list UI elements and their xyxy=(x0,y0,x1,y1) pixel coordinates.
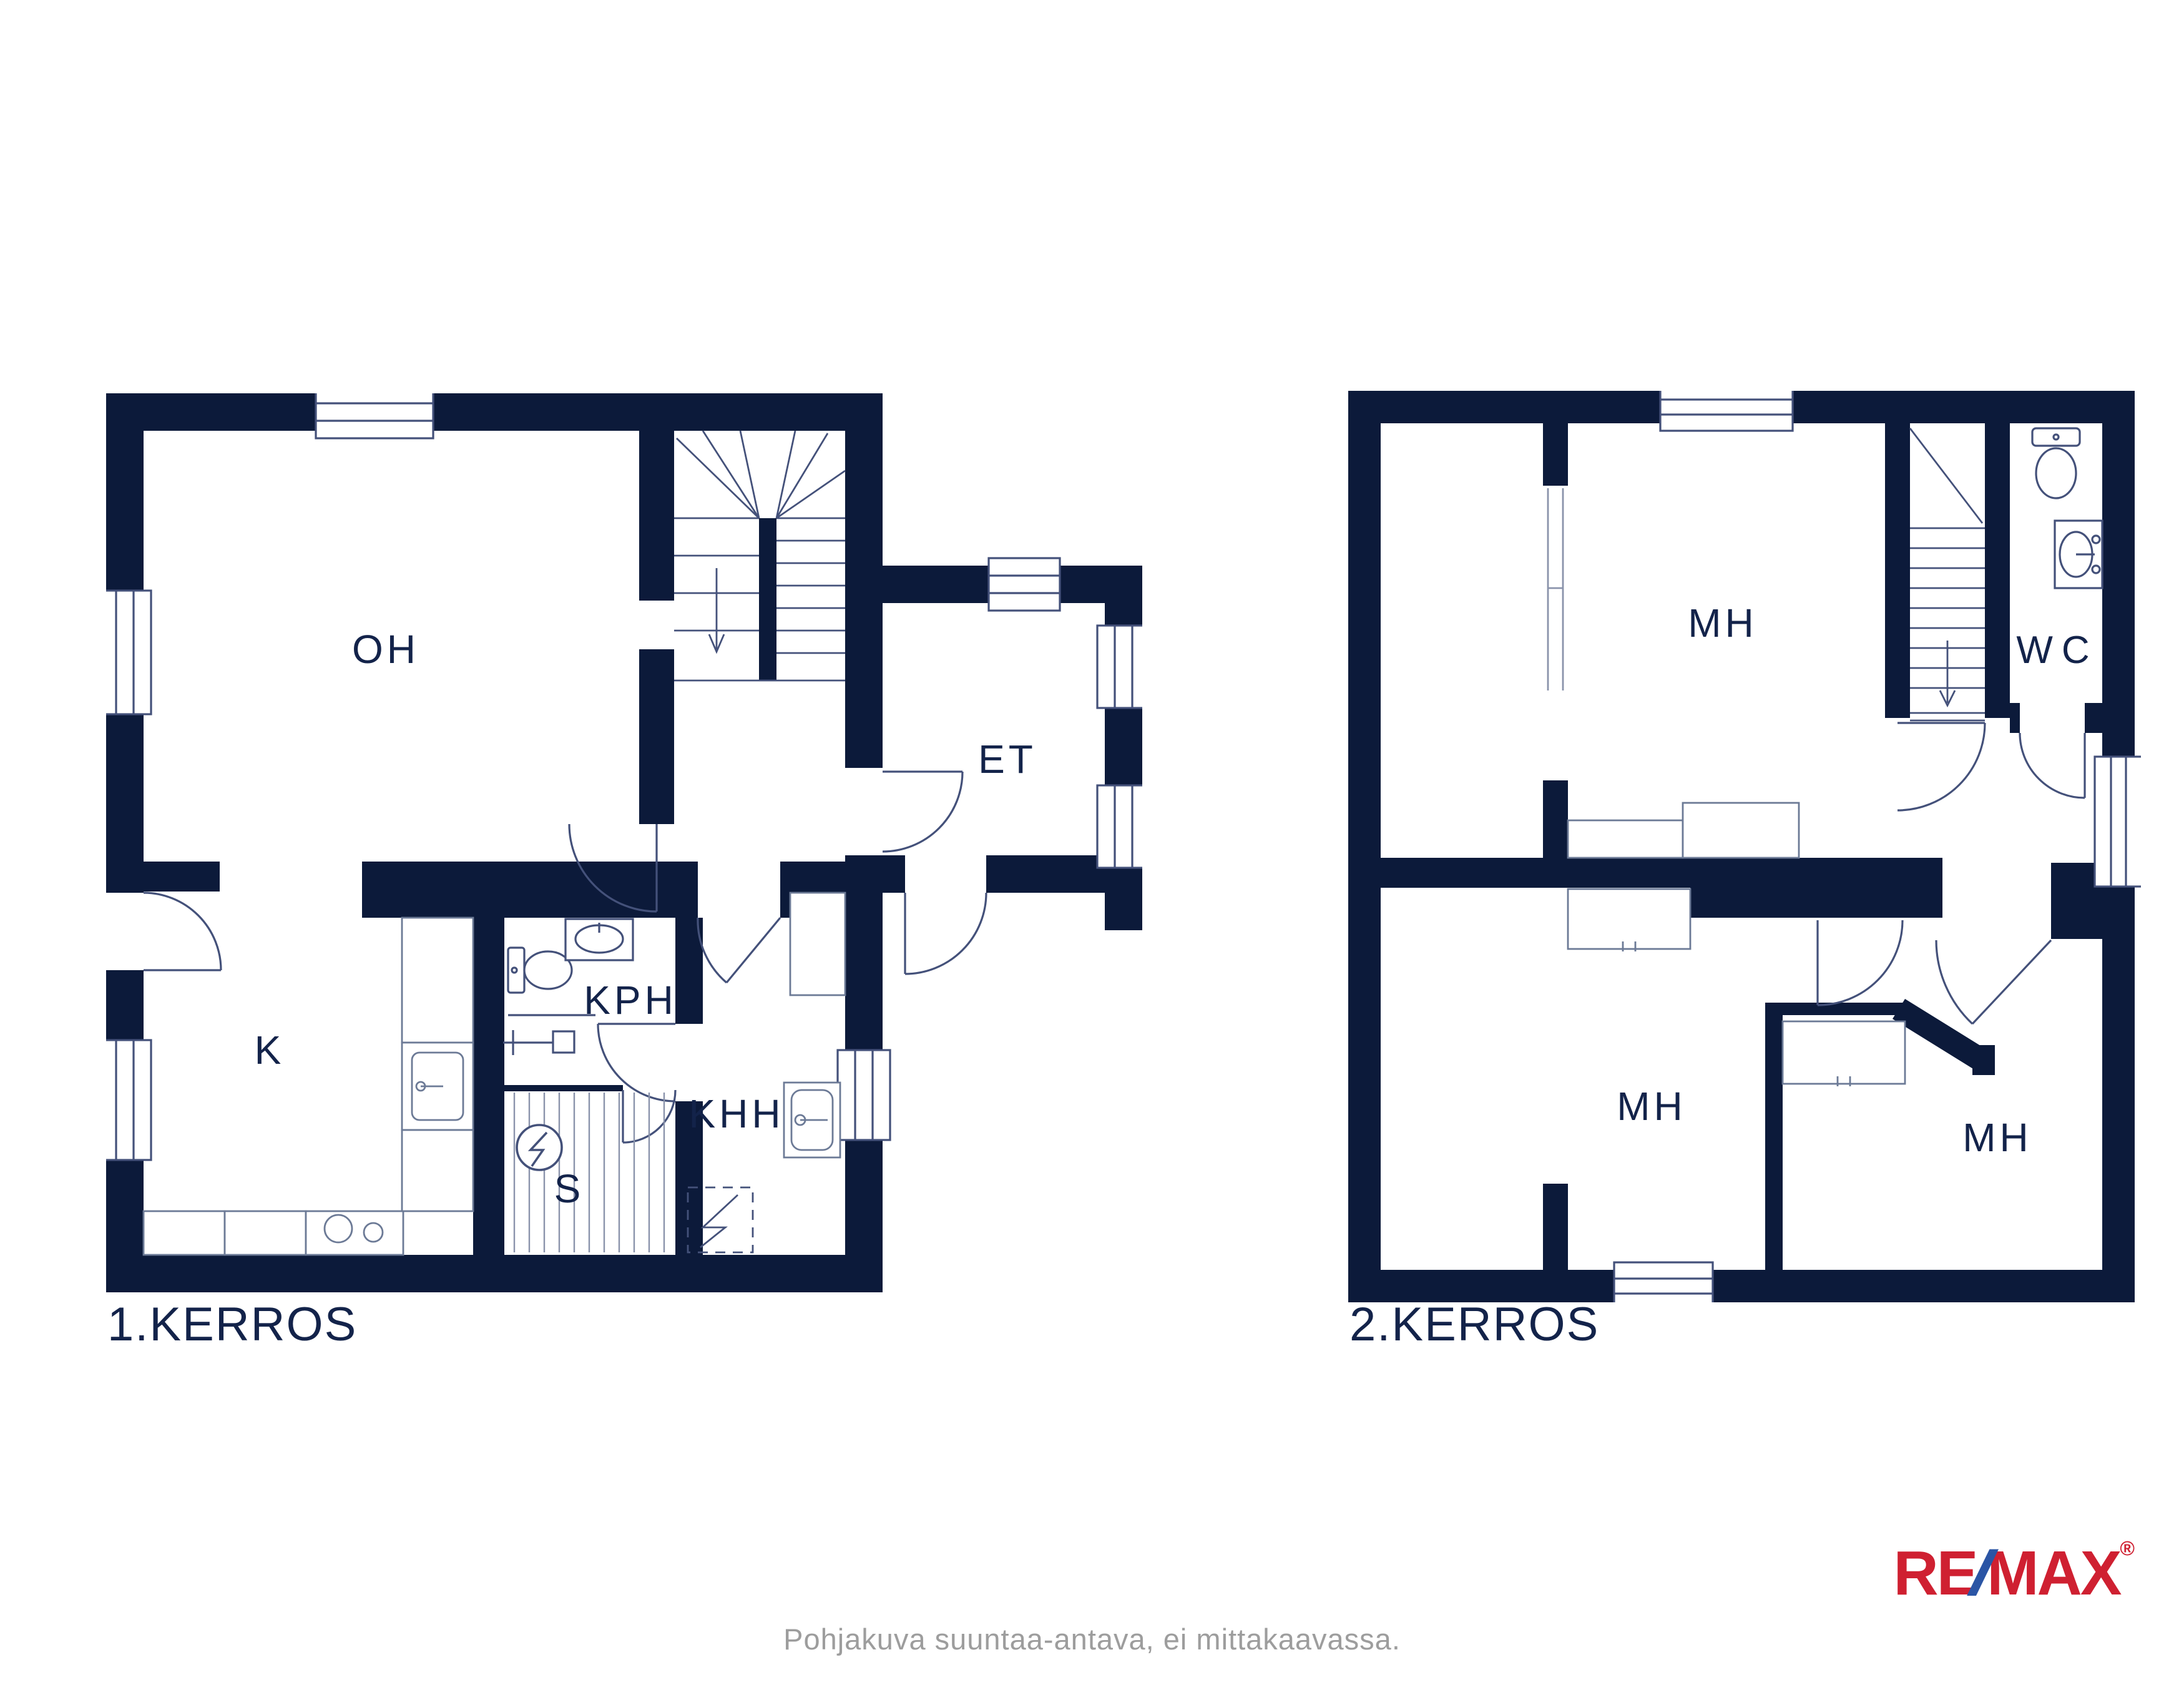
wall-thin xyxy=(1765,1003,1905,1015)
wall xyxy=(639,649,674,824)
window-icon xyxy=(1097,626,1142,708)
shower-icon xyxy=(553,1031,574,1053)
wall xyxy=(1543,1184,1568,1270)
door-arc xyxy=(1898,723,1985,810)
floor2-title: 2.KERROS xyxy=(1349,1297,1599,1352)
room-label-et: ET xyxy=(978,737,1037,782)
room-label-khh: KHH xyxy=(688,1091,784,1136)
door-arc xyxy=(698,918,780,983)
wall xyxy=(845,855,905,893)
door-arc xyxy=(2020,733,2085,798)
wall xyxy=(362,862,698,918)
door-arc xyxy=(883,772,962,852)
disclaimer-caption: Pohjakuva suuntaa-antava, ei mittakaavas… xyxy=(0,1622,2184,1656)
room-label-wc: WC xyxy=(2016,629,2098,672)
wall xyxy=(1972,1045,1995,1075)
room-label-oh: OH xyxy=(352,627,419,672)
closet-partition xyxy=(1548,488,1563,690)
wall xyxy=(473,918,504,1255)
wall xyxy=(845,893,883,1053)
remax-logo: RE/MAX® xyxy=(1893,1542,2135,1604)
wall xyxy=(106,393,883,431)
wall xyxy=(1543,780,1568,858)
wc-fixtures xyxy=(2032,428,2102,588)
wardrobes xyxy=(1568,803,1905,1086)
wall xyxy=(845,1137,883,1255)
window-icon xyxy=(1097,785,1142,868)
wall xyxy=(106,1255,883,1292)
wall xyxy=(2010,703,2020,733)
kitchen-counter xyxy=(144,918,473,1255)
floor-plan-1: OH K KPH S KHH ET xyxy=(106,393,1142,1292)
closet-icon xyxy=(1783,1021,1905,1084)
logo-re: RE xyxy=(1893,1538,1976,1608)
cabinet xyxy=(402,918,473,1043)
door-arc xyxy=(144,893,221,970)
logo-max: MAX xyxy=(1987,1538,2120,1608)
floor1-title: 1.KERROS xyxy=(107,1297,357,1352)
wall xyxy=(1543,423,1568,486)
window-icon xyxy=(838,1050,890,1140)
wall xyxy=(639,393,674,601)
door-arc xyxy=(905,893,986,974)
window-icon xyxy=(989,558,1060,611)
window-icon xyxy=(1660,391,1793,431)
window-icon xyxy=(106,591,151,714)
room-label-mh-top: MH xyxy=(1688,601,1758,646)
stairs-icon xyxy=(1910,428,1985,720)
wall xyxy=(1690,888,1942,918)
room-label-k: K xyxy=(255,1028,285,1073)
utility-fixtures xyxy=(688,893,845,1252)
stair-center-wall xyxy=(759,518,776,680)
window-icon xyxy=(106,1040,151,1160)
cabinet xyxy=(402,1130,473,1211)
stove-icon xyxy=(325,1215,352,1242)
room-label-kph: KPH xyxy=(584,978,677,1023)
room-label-mh-left: MH xyxy=(1617,1084,1687,1129)
wall xyxy=(1985,423,2010,718)
registered-mark-icon: ® xyxy=(2120,1537,2135,1560)
room-label-mh-right: MH xyxy=(1962,1115,2032,1160)
stove-icon xyxy=(364,1223,383,1242)
toilet-icon xyxy=(2036,448,2076,498)
door-gap xyxy=(106,893,144,970)
wall-thin xyxy=(1765,1003,1783,1270)
lightning-icon xyxy=(700,1195,738,1247)
wardrobe-icon xyxy=(1683,803,1799,858)
closet-icon xyxy=(1568,889,1690,949)
wall xyxy=(1885,423,1910,718)
window-icon xyxy=(1614,1262,1713,1302)
wall xyxy=(2085,703,2102,733)
cabinet xyxy=(790,893,845,995)
window-icon xyxy=(316,393,433,438)
sauna-stove-icon xyxy=(517,1125,562,1170)
wall-thin xyxy=(504,1085,623,1091)
room-label-s: S xyxy=(554,1166,585,1211)
wall xyxy=(1381,858,1942,888)
floor1-walls xyxy=(106,393,1142,1292)
sauna-floorboards xyxy=(514,1093,664,1252)
floor-plan-2: MH MH MH WC xyxy=(1348,391,2141,1302)
wardrobe-icon xyxy=(1568,820,1683,858)
window-icon xyxy=(2095,757,2141,887)
floor1-door-gaps xyxy=(106,893,144,970)
door-arc xyxy=(1936,940,2051,1024)
door-arc xyxy=(1818,920,1902,1005)
wall xyxy=(144,862,220,892)
wall xyxy=(1348,391,1381,1302)
